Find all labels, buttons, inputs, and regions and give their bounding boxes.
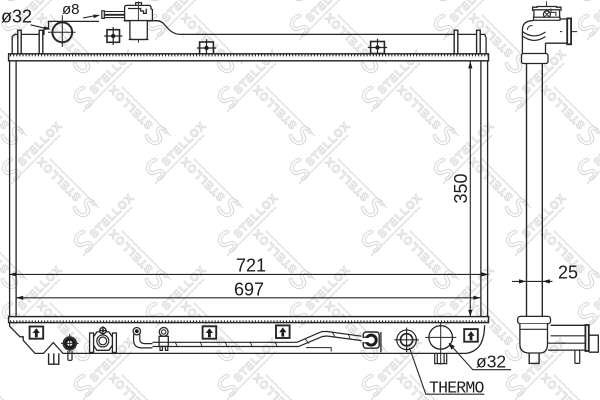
svg-text:25: 25 [558,263,578,283]
svg-text:ø32: ø32 [1,7,32,27]
svg-text:ø32: ø32 [476,352,506,372]
svg-text:THERMO: THERMO [429,379,485,398]
svg-text:697: 697 [234,279,264,299]
svg-text:721: 721 [236,255,266,275]
svg-text:ø8: ø8 [62,1,80,18]
svg-text:350: 350 [451,173,471,203]
